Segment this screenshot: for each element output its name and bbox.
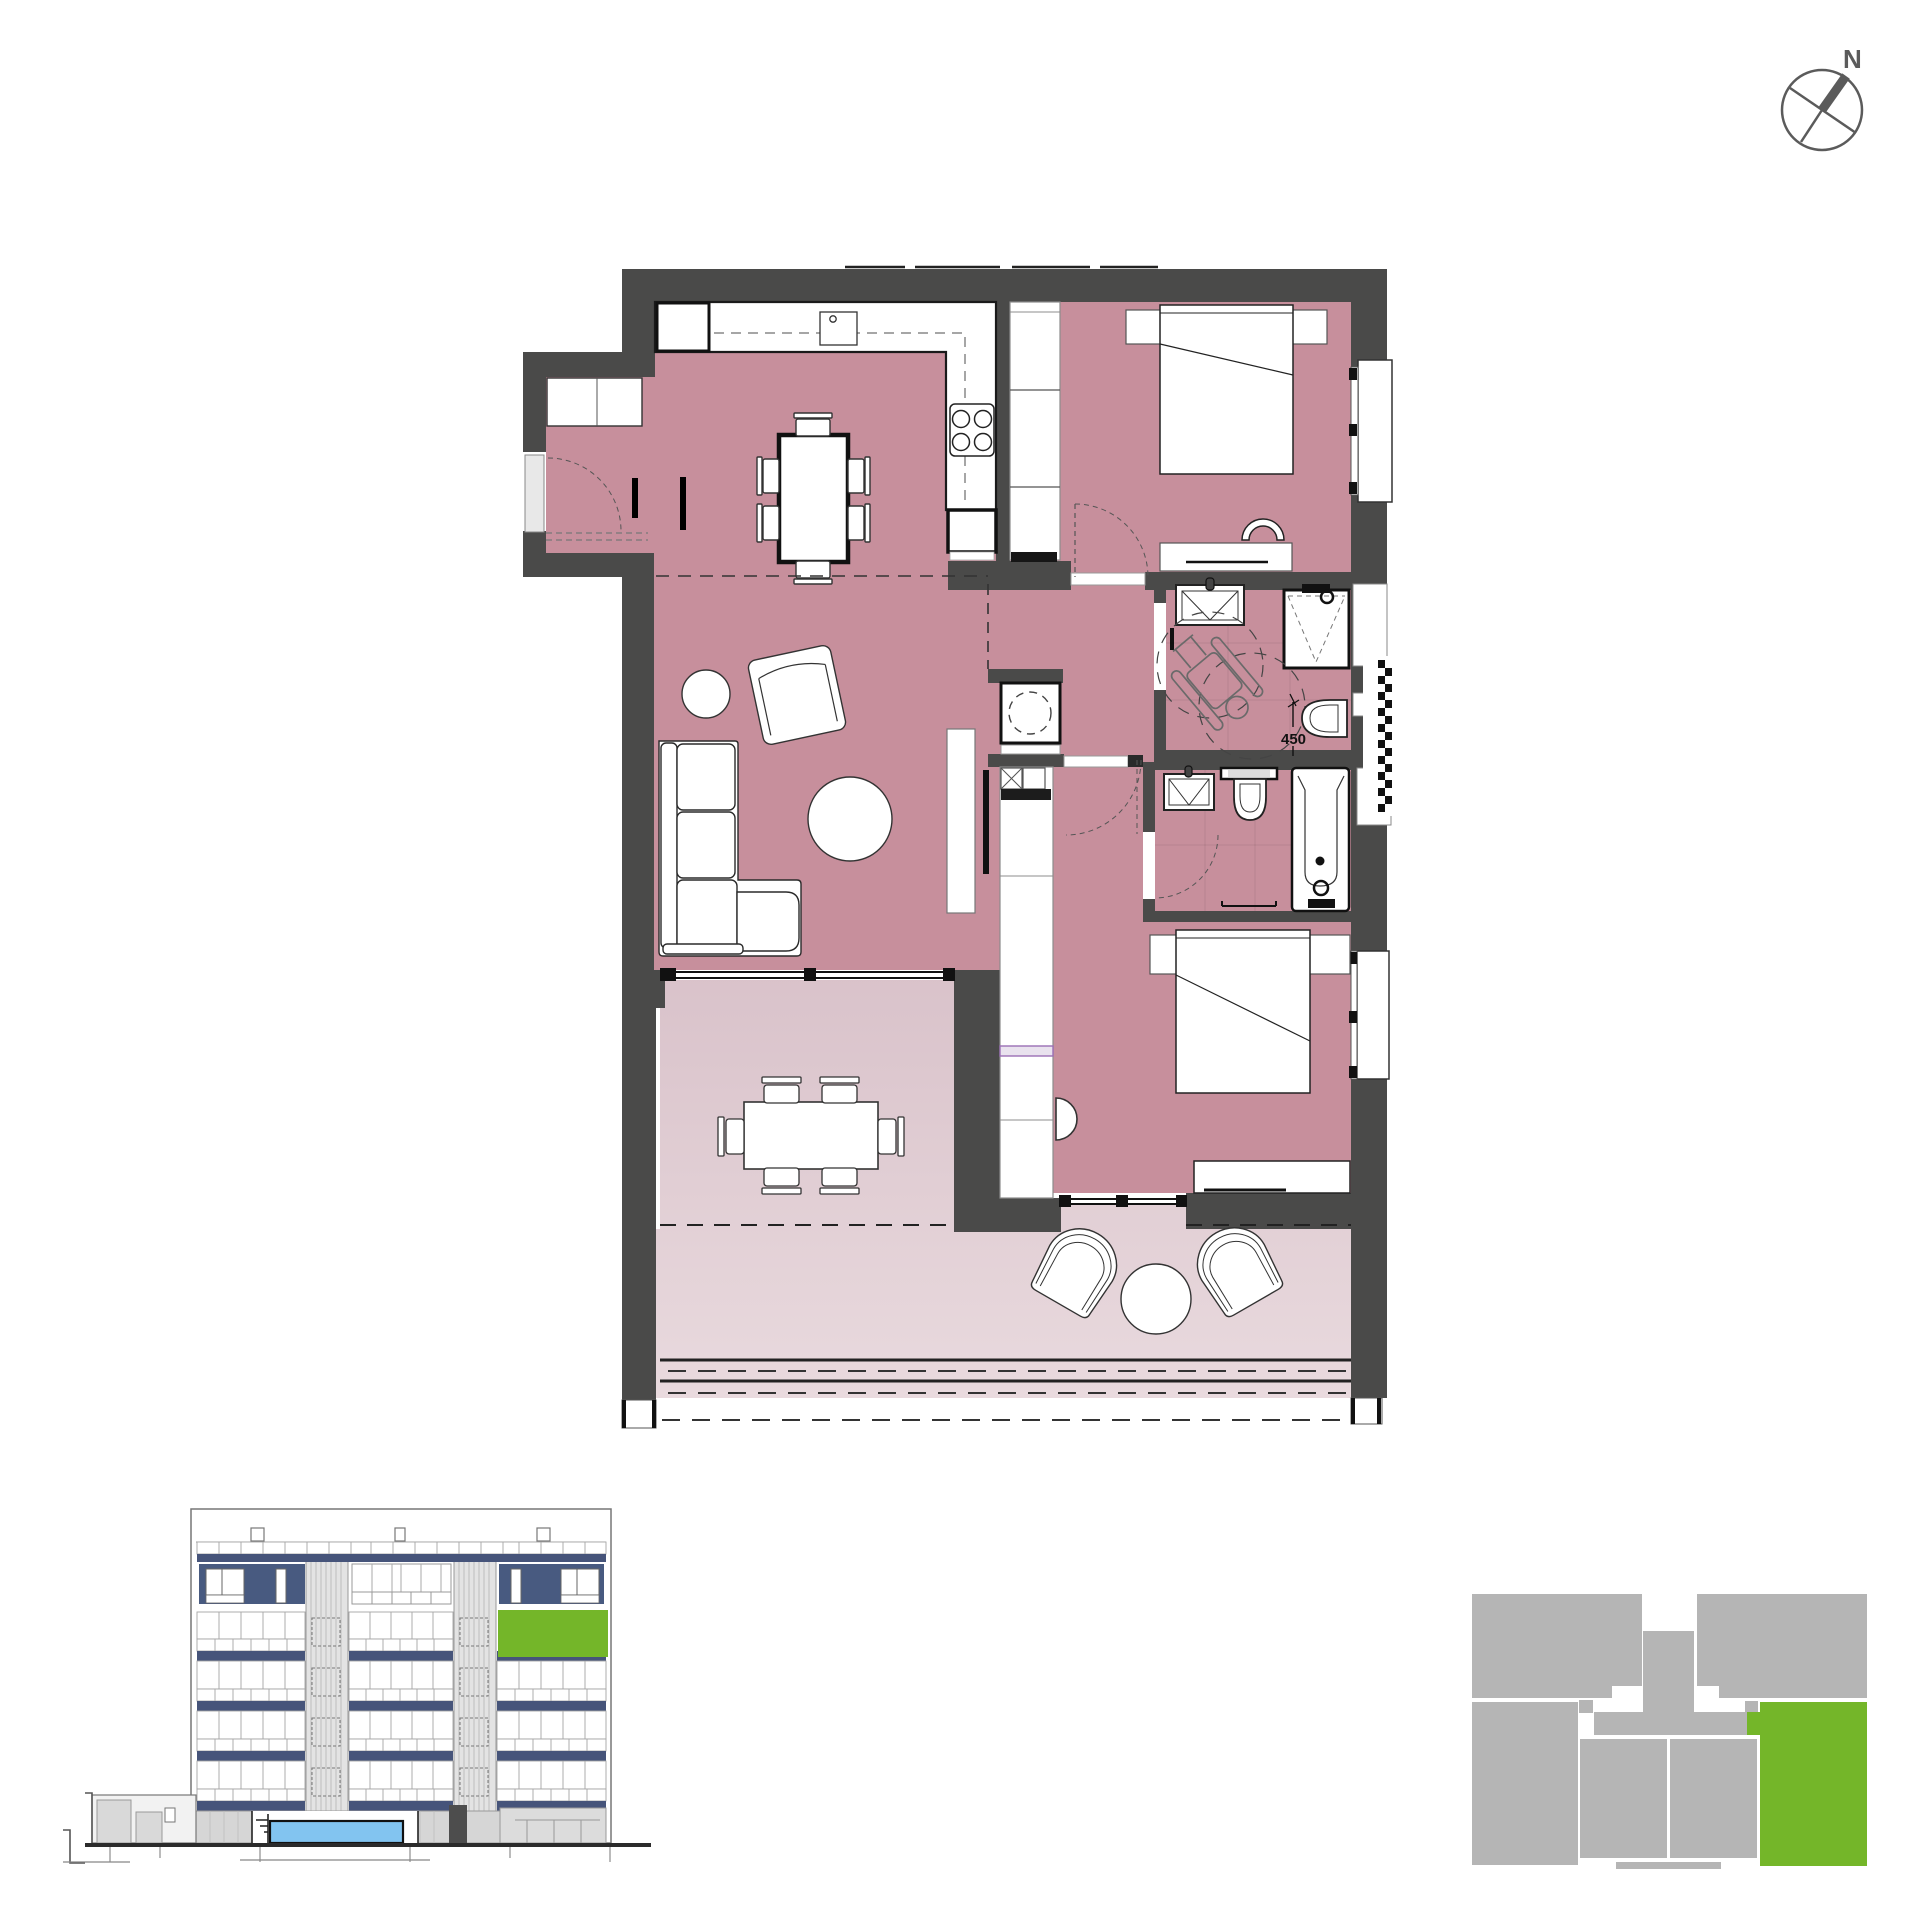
- svg-text:N: N: [1843, 44, 1862, 74]
- svg-text:450: 450: [1281, 731, 1306, 748]
